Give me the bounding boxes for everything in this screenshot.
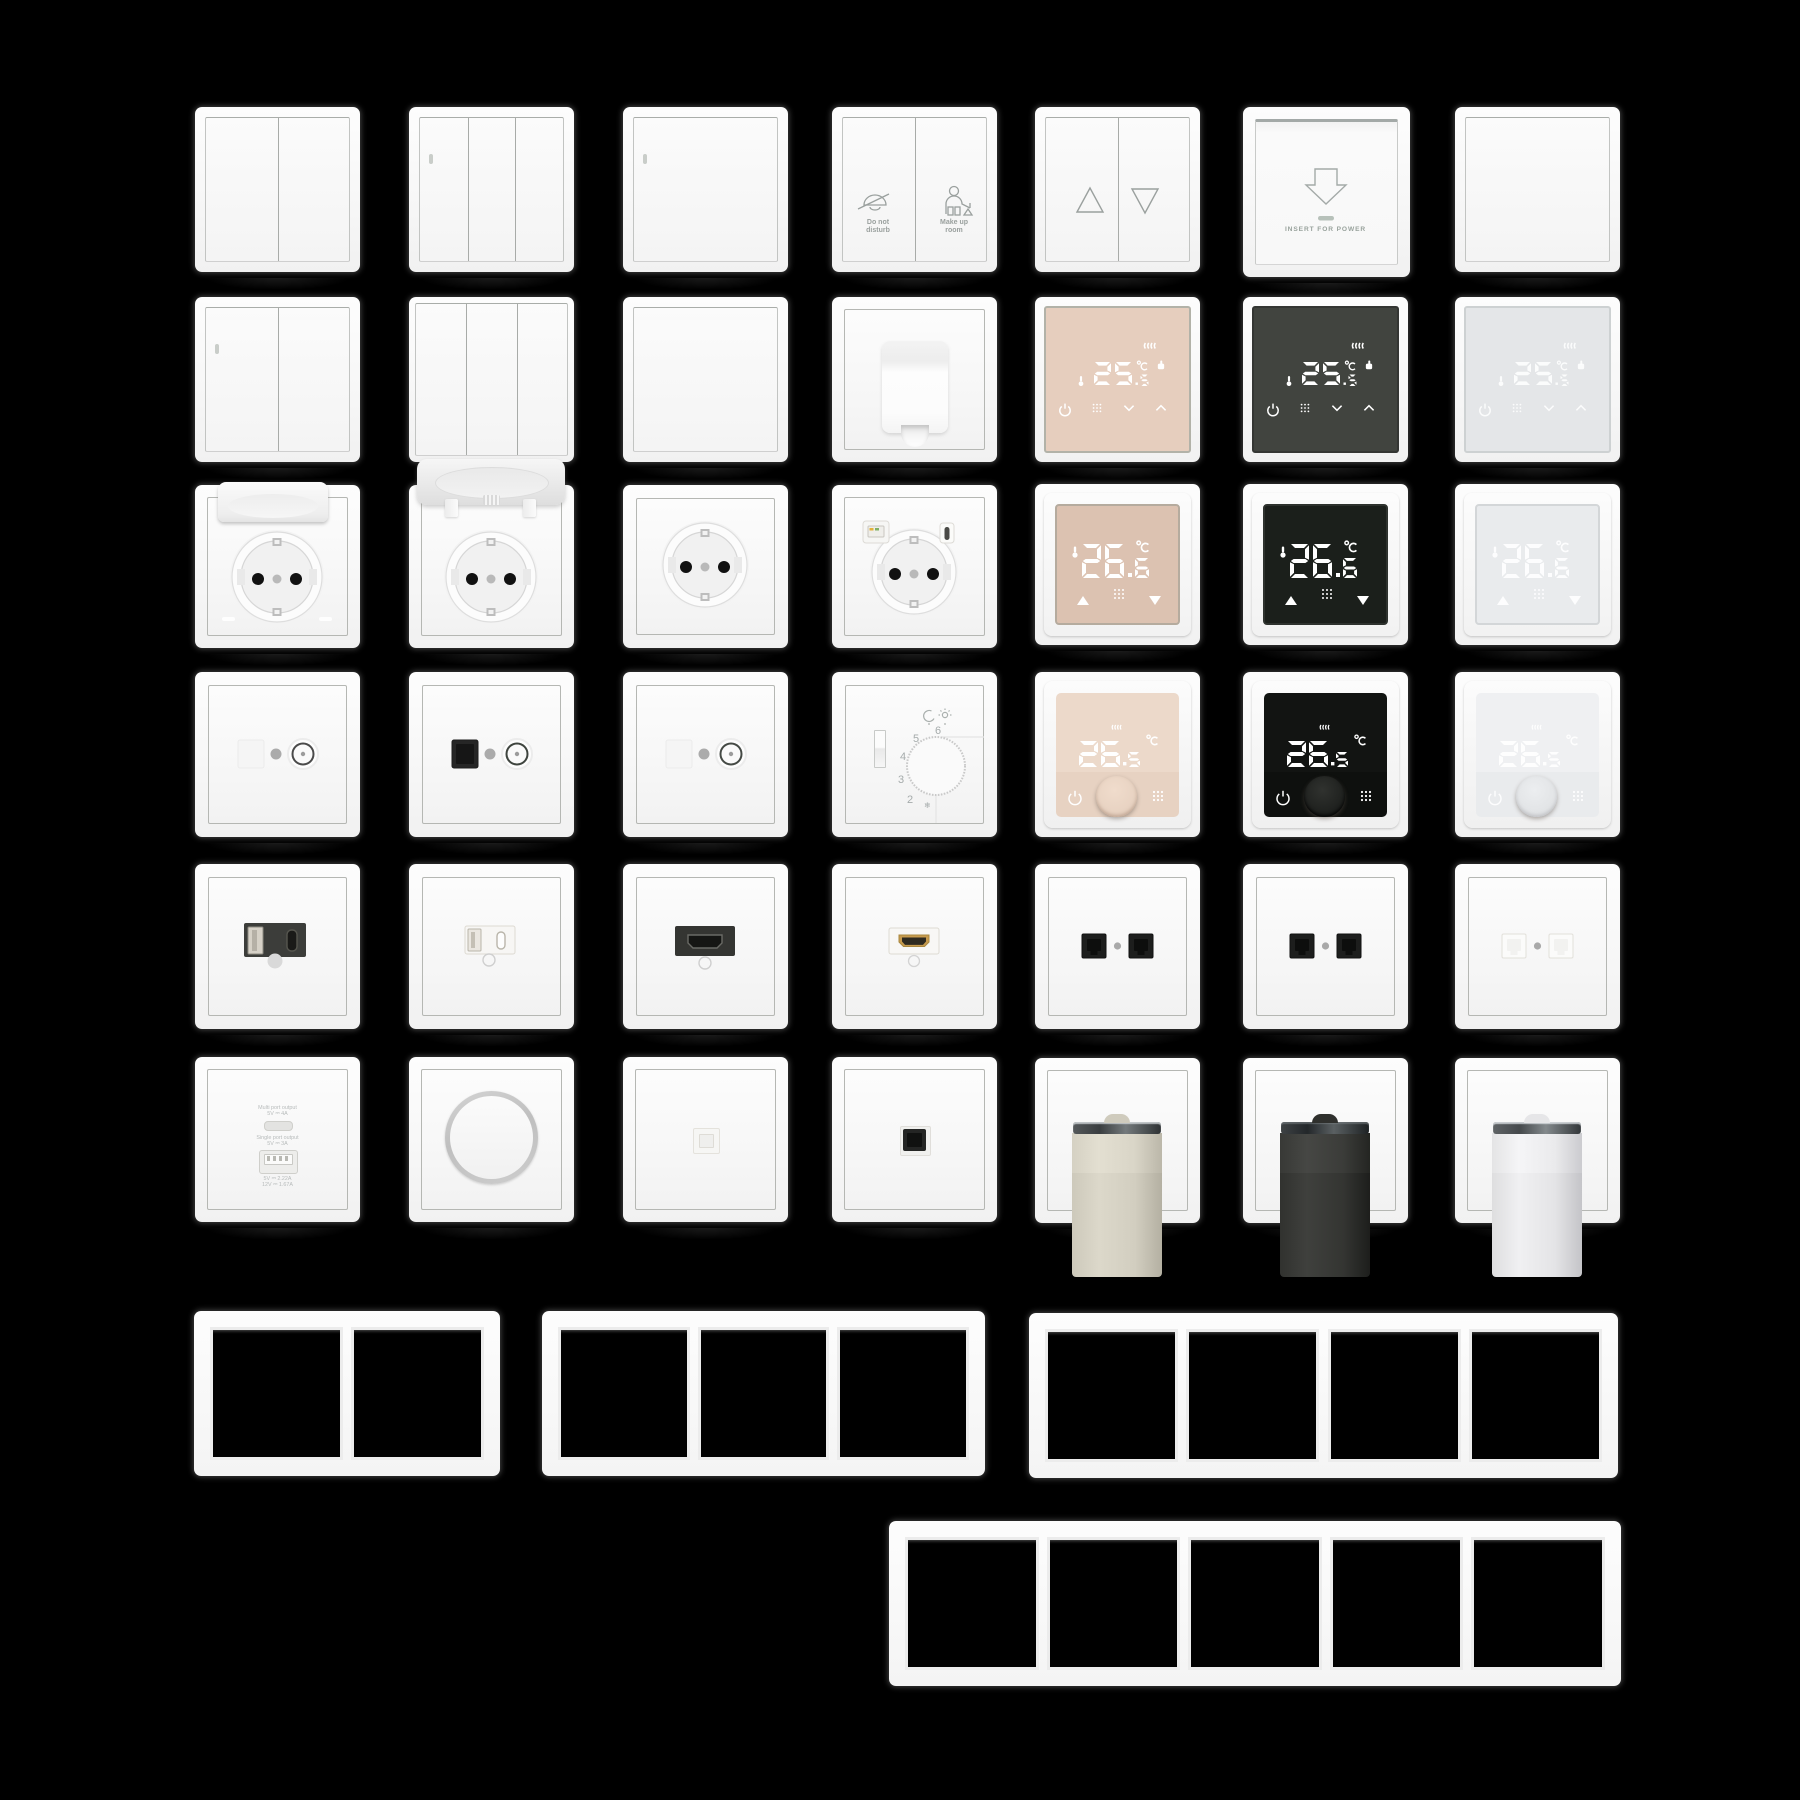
svg-text:6: 6 [935,725,941,737]
svg-text:2: 2 [907,794,913,806]
svg-text:4: 4 [900,751,906,763]
svg-text:❄: ❄ [924,801,931,810]
svg-text:3: 3 [898,774,904,786]
